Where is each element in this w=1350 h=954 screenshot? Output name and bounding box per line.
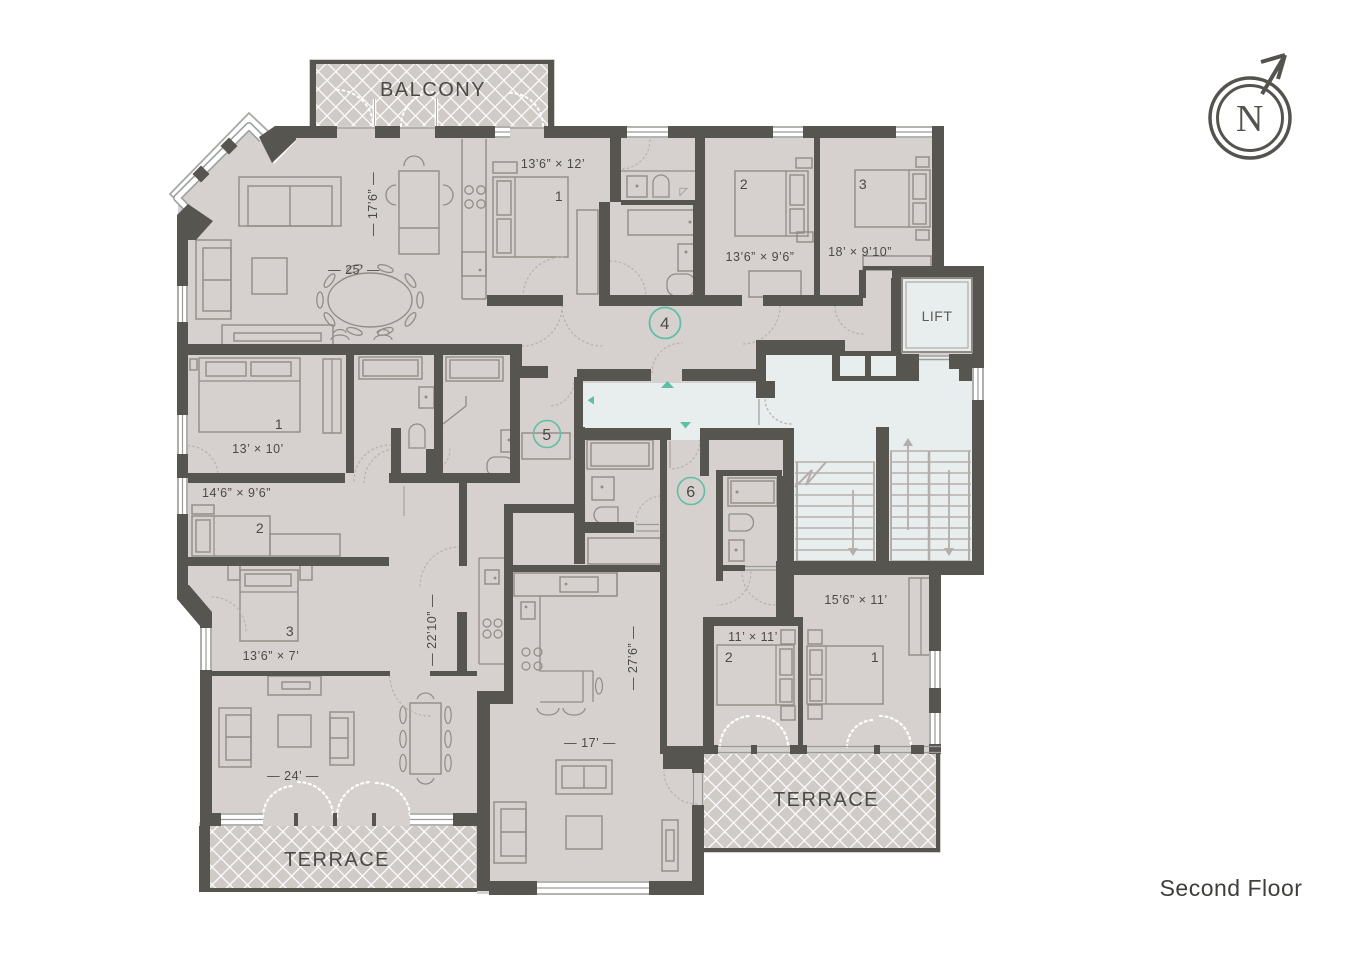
svg-text:1: 1 — [275, 416, 283, 432]
svg-text:— 24’ —: — 24’ — — [267, 769, 319, 783]
svg-text:14’6” × 9’6”: 14’6” × 9’6” — [202, 486, 271, 500]
svg-text:6: 6 — [686, 484, 695, 501]
svg-text:◸: ◸ — [680, 186, 689, 198]
svg-text:— 25’ —: — 25’ — — [328, 263, 380, 277]
svg-text:18’ × 9’10”: 18’ × 9’10” — [828, 245, 892, 259]
svg-text:LIFT: LIFT — [922, 308, 953, 324]
svg-text:3: 3 — [859, 176, 867, 192]
svg-text:2: 2 — [740, 176, 748, 192]
svg-text:— 27’6” —: — 27’6” — — [626, 626, 640, 690]
svg-text:13’6” × 9’6”: 13’6” × 9’6” — [726, 250, 795, 264]
svg-text:BALCONY: BALCONY — [380, 79, 486, 101]
svg-text:1: 1 — [871, 649, 879, 665]
svg-text:3: 3 — [286, 623, 294, 639]
svg-text:TERRACE: TERRACE — [284, 849, 390, 871]
svg-text:1: 1 — [555, 188, 563, 204]
svg-text:5: 5 — [542, 427, 551, 444]
svg-text:13’6” × 7’: 13’6” × 7’ — [243, 649, 300, 663]
svg-text:15’6” × 11’: 15’6” × 11’ — [824, 593, 887, 607]
svg-text:13’ × 10’: 13’ × 10’ — [232, 442, 284, 456]
svg-text:— 22’10” —: — 22’10” — — [425, 594, 439, 666]
svg-text:2: 2 — [256, 520, 264, 536]
svg-text:2: 2 — [725, 649, 733, 665]
svg-text:13’6” × 12’: 13’6” × 12’ — [521, 157, 585, 171]
svg-text:N: N — [1236, 98, 1264, 140]
svg-text:Second Floor: Second Floor — [1160, 875, 1303, 901]
svg-text:4: 4 — [660, 314, 670, 333]
svg-text:— 17’ —: — 17’ — — [564, 736, 616, 750]
svg-text:TERRACE: TERRACE — [773, 789, 879, 811]
svg-text:11’ × 11’: 11’ × 11’ — [728, 630, 778, 644]
svg-text:— 17’6” —: — 17’6” — — [366, 172, 380, 236]
